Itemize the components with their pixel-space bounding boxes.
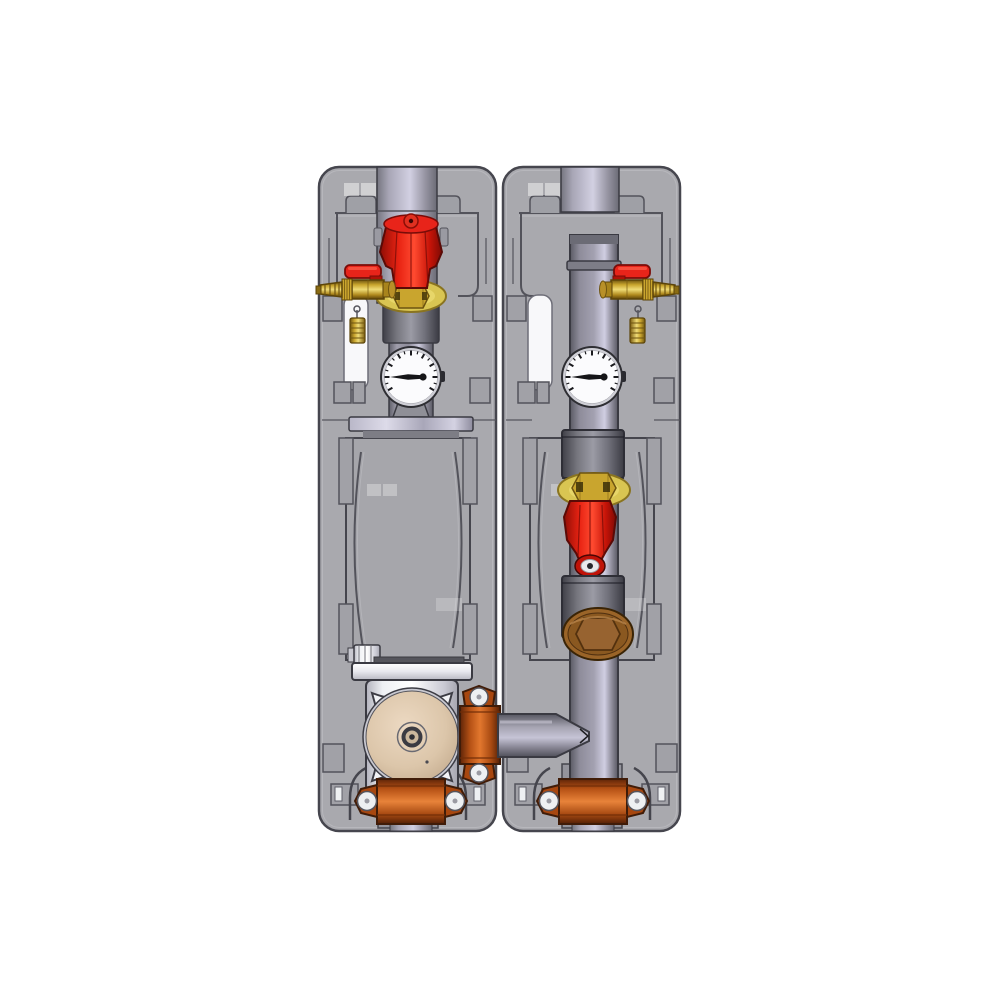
pump-top-plate bbox=[352, 663, 472, 680]
pipe-cap-band bbox=[567, 261, 621, 270]
cad-render-stage bbox=[0, 0, 1000, 1000]
needle-hub bbox=[590, 375, 595, 380]
needle-hub bbox=[409, 375, 414, 380]
flange-shadow bbox=[363, 431, 459, 438]
flange-bar bbox=[349, 417, 473, 431]
top-pipe-stub-right bbox=[561, 167, 619, 212]
knob-clip bbox=[440, 228, 448, 246]
left-insulated-line bbox=[316, 167, 500, 831]
clamp-barrel bbox=[460, 706, 500, 764]
pump-group-drawing bbox=[0, 0, 1000, 1000]
plug-hex bbox=[576, 618, 620, 650]
knob-clip bbox=[374, 228, 382, 246]
side-coupling-clamp bbox=[460, 686, 500, 784]
